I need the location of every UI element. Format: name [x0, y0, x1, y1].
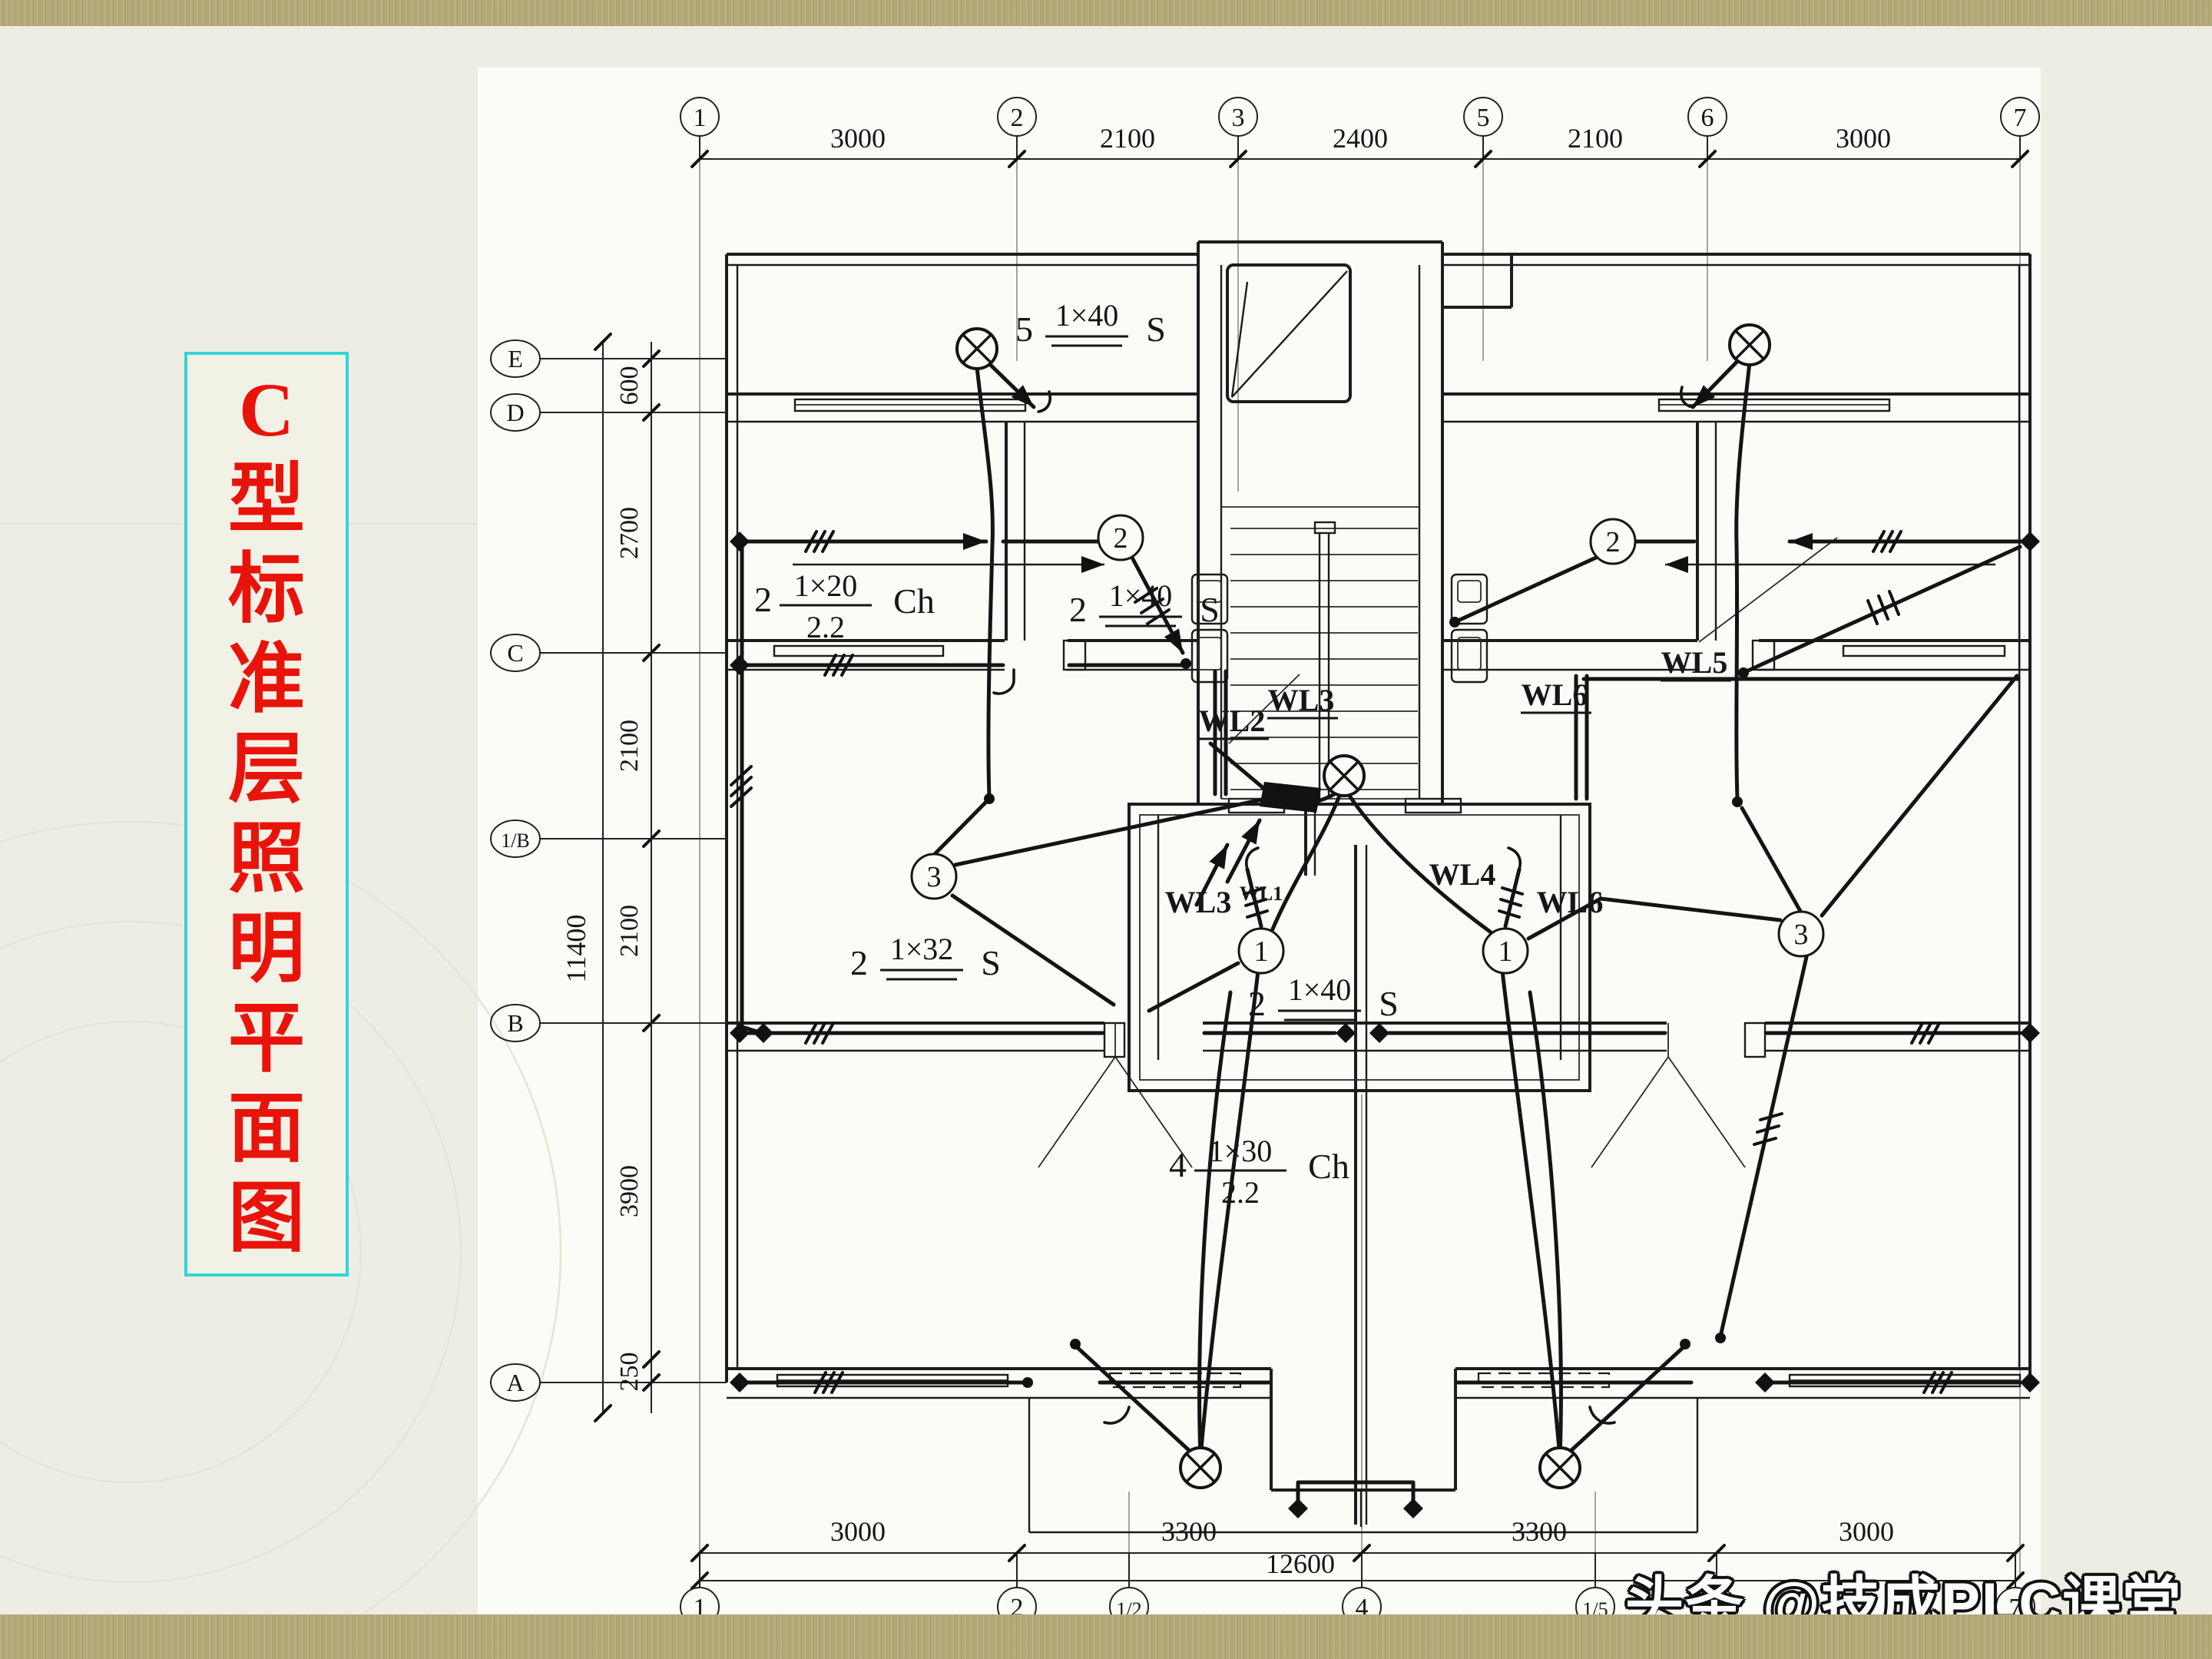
circuit-label: WL1	[1240, 882, 1283, 905]
dim-overall-text: 11400	[561, 915, 591, 983]
lamp-icon	[1324, 756, 1364, 796]
circuit-label: WL6	[1537, 885, 1604, 919]
axis-bubble-label: 1	[694, 104, 707, 132]
wall-node	[730, 1373, 750, 1392]
fixture-suffix: S	[1146, 310, 1166, 349]
circuit-label: WL6	[1522, 677, 1588, 712]
title-char: 照	[228, 814, 305, 904]
axis-bubble-label: 1/B	[501, 829, 530, 852]
slide: 12356730002100240021003000 EDC1/BBA60027…	[0, 0, 2212, 1659]
dim-text: 250	[615, 1353, 644, 1392]
arrowhead	[1665, 556, 1688, 573]
axis-bubble-label: 6	[1701, 104, 1714, 132]
wall-node	[2020, 1023, 2040, 1043]
slide-bottom-band	[0, 1614, 2212, 1659]
dim-text: 3000	[1839, 1516, 1894, 1547]
wall-node	[2020, 531, 2040, 551]
junction-bubble-label: 1	[1498, 935, 1513, 968]
switch-number-bubbles: 223311	[912, 515, 1823, 973]
wall-node	[1369, 1023, 1389, 1043]
axis-bubble-label: D	[506, 399, 524, 426]
wall-node	[730, 1023, 750, 1043]
fixture-denominator: 2.2	[1221, 1175, 1260, 1210]
dim-text: 2100	[615, 720, 644, 772]
arrowhead	[963, 533, 986, 550]
fixture-suffix: Ch	[1308, 1147, 1349, 1186]
dim-text: 2100	[1100, 123, 1155, 154]
wall-node	[730, 655, 750, 675]
fixture-spec: 1×20	[794, 568, 858, 603]
title-char: 层	[228, 724, 305, 814]
arrowhead	[1241, 820, 1260, 845]
dim-text: 2700	[615, 507, 644, 559]
fixture-label: 21×32S	[850, 932, 1001, 982]
title-box: C型标准层照明平面图	[184, 352, 349, 1277]
top-axis: 12356730002100240021003000	[680, 98, 2039, 167]
fixture-labels: 51×40S21×202.2Ch21×40S21×32S21×40S41×302…	[754, 298, 1399, 1210]
axis-bubble-label: 7	[2014, 104, 2027, 132]
circuit-label: WL3	[1268, 683, 1335, 717]
title-char: 面	[228, 1084, 305, 1174]
fixture-spec: 1×32	[890, 932, 954, 966]
wall-node	[1336, 1023, 1356, 1043]
arrowhead	[1081, 556, 1104, 573]
axis-bubble-label: C	[507, 639, 523, 667]
arrowhead	[1790, 533, 1813, 550]
title-char: C	[239, 365, 294, 455]
junction-bubble-label: 2	[1606, 526, 1621, 558]
axis-bubble-label: 5	[1477, 104, 1490, 132]
wall-node	[1288, 1498, 1308, 1518]
fixture-spec: 1×40	[1109, 578, 1173, 613]
dim-overall-text: 12600	[1266, 1548, 1335, 1579]
circuit-label: WL5	[1661, 645, 1728, 680]
axis-bubble-label: E	[508, 345, 523, 373]
junction-bubble-label: 2	[1114, 522, 1128, 555]
title-char: 标	[228, 545, 305, 634]
dim-text: 3900	[615, 1165, 644, 1217]
lamp-symbols	[957, 325, 1770, 1488]
wall-node	[1755, 1373, 1775, 1392]
junction-bubble-label: 1	[1254, 935, 1269, 968]
fixture-spec: 1×40	[1288, 972, 1352, 1007]
wall-node	[2020, 1373, 2040, 1392]
fixture-count: 2	[1069, 590, 1087, 629]
circuit-label: WL4	[1429, 857, 1496, 892]
lamp-icon	[957, 329, 997, 369]
fixture-count: 2	[754, 580, 772, 619]
title-char: 型	[228, 455, 305, 545]
axis-bubble-label: 2	[1011, 104, 1024, 132]
fixture-suffix: Ch	[893, 581, 935, 621]
wall-node	[753, 1023, 773, 1043]
dim-text: 2100	[615, 905, 644, 957]
dim-text: 3000	[830, 123, 886, 154]
dim-text: 600	[615, 366, 644, 406]
fixture-suffix: S	[981, 943, 1001, 982]
wall-node	[730, 531, 750, 551]
lamp-icon	[1181, 1448, 1220, 1488]
axis-bubble-label: A	[506, 1369, 524, 1396]
fixture-suffix: S	[1379, 984, 1399, 1023]
fixture-label: 41×302.2Ch	[1169, 1134, 1349, 1210]
axis-bubble-label: B	[507, 1009, 523, 1037]
fixture-suffix: S	[1200, 590, 1220, 629]
fixture-spec: 1×30	[1209, 1134, 1273, 1168]
junction-bubble-label: 3	[1794, 919, 1809, 951]
title-char: 明	[228, 904, 305, 994]
fixture-denominator: 2.2	[806, 610, 845, 644]
title-char: 图	[228, 1174, 305, 1263]
left-axis: EDC1/BBA600270021002100390025011400	[491, 334, 727, 1421]
dim-text: 3300	[1161, 1516, 1217, 1547]
fixture-count: 4	[1169, 1145, 1187, 1184]
dim-text: 2400	[1333, 123, 1388, 154]
dim-text: 3000	[830, 1516, 886, 1547]
fixture-count: 5	[1015, 310, 1033, 349]
dim-text: 3300	[1512, 1516, 1567, 1547]
fixture-count: 2	[850, 943, 868, 982]
circuit-label: WL3	[1165, 885, 1232, 919]
wiring-lines	[740, 349, 2030, 1505]
title-char: 平	[228, 994, 305, 1084]
fixture-label: 51×40S	[1015, 298, 1166, 349]
dim-text: 2100	[1568, 123, 1623, 154]
axis-bubble-label: 3	[1232, 104, 1245, 132]
wall-node	[1403, 1498, 1423, 1518]
fixture-label: 21×202.2Ch	[754, 568, 935, 644]
junction-bubble-label: 3	[927, 861, 942, 893]
lamp-icon	[1730, 325, 1770, 365]
title-char: 准	[228, 634, 305, 724]
fixture-count: 2	[1248, 984, 1266, 1023]
fixture-spec: 1×40	[1055, 298, 1119, 333]
circuit-label: WL2	[1199, 704, 1266, 738]
arrowhead	[1210, 845, 1227, 869]
dim-text: 3000	[1836, 123, 1891, 154]
lamp-icon	[1540, 1448, 1580, 1488]
fixture-label: 21×40S	[1248, 972, 1399, 1023]
